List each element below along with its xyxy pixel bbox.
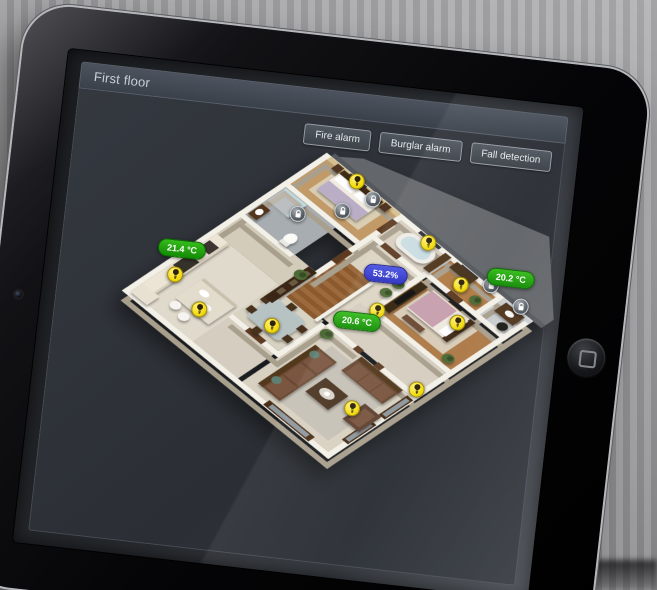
- tablet-device: First floor Fire alarm Burglar alarm Fal…: [0, 2, 652, 590]
- lightbulb-icon: [352, 175, 362, 188]
- temperature-value: 20.2 °C: [495, 272, 526, 285]
- lightbulb-icon: [194, 303, 204, 316]
- lightbulb-icon: [423, 236, 433, 249]
- photo-backdrop: First floor Fire alarm Burglar alarm Fal…: [0, 0, 657, 590]
- tablet-screen: First floor Fire alarm Burglar alarm Fal…: [13, 49, 584, 590]
- page-title: First floor: [93, 69, 151, 90]
- humidity-value: 53.2%: [372, 268, 398, 281]
- lightbulb-icon: [347, 402, 357, 415]
- front-camera: [14, 290, 22, 298]
- lightbulb-icon: [456, 278, 466, 291]
- lightbulb-icon: [452, 316, 462, 329]
- temperature-value: 21.4 °C: [166, 242, 197, 255]
- lock-icon: [293, 208, 303, 220]
- lightbulb-icon: [170, 268, 180, 281]
- temperature-value: 20.6 °C: [341, 315, 372, 328]
- lightbulb-icon: [411, 383, 421, 396]
- lock-icon: [368, 193, 378, 205]
- home-button[interactable]: [565, 336, 607, 378]
- lock-icon: [337, 205, 347, 217]
- lock-icon: [516, 301, 526, 313]
- lightbulb-icon: [267, 319, 277, 332]
- home-button-icon: [578, 349, 597, 368]
